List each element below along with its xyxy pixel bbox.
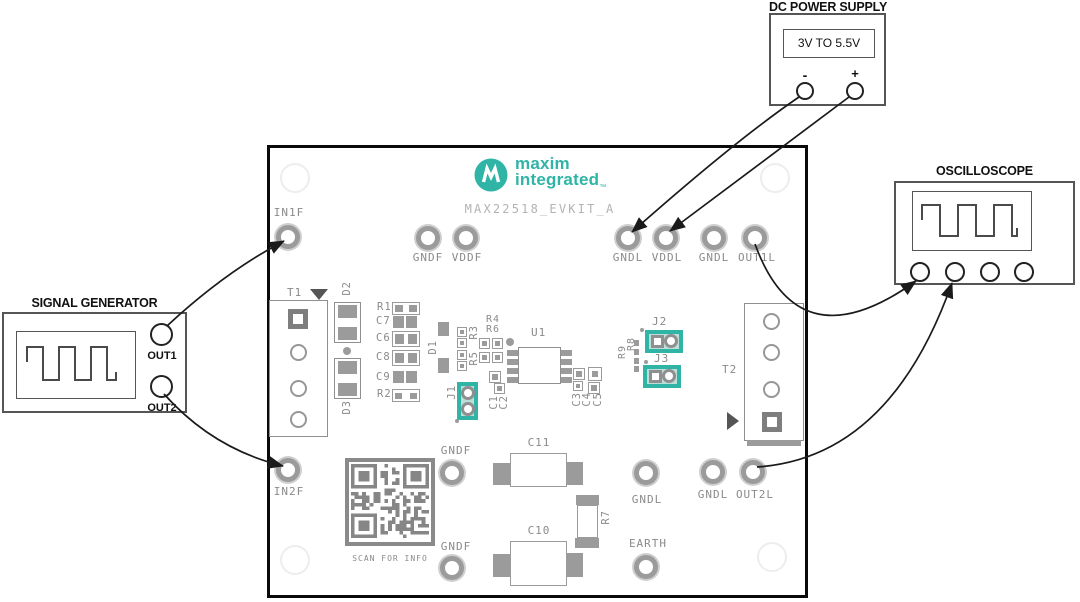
u1-pin — [507, 350, 518, 356]
out1-label: OUT1 — [147, 350, 176, 362]
r6-chip — [479, 352, 490, 363]
ref-c2: C2 — [498, 395, 510, 410]
ref-c5: C5 — [592, 392, 604, 407]
t1-hole — [290, 411, 307, 428]
pin1-dot — [455, 419, 459, 423]
u1-pin — [561, 377, 572, 383]
u1-pin — [561, 359, 572, 365]
c11-cap-end — [566, 462, 583, 485]
j1-pad-round — [461, 402, 475, 416]
signal-generator-out2-terminal — [150, 375, 173, 398]
u1-pin — [561, 368, 572, 374]
pin1-dot — [644, 360, 648, 364]
tp-vddf — [454, 226, 478, 250]
r6-chip — [492, 352, 503, 363]
mounting-hole — [757, 542, 787, 572]
c3-chip — [573, 368, 585, 380]
ref-j2: J2 — [652, 315, 667, 328]
oscilloscope-box — [894, 181, 1075, 285]
j1-pad-round — [461, 386, 475, 400]
r5-chip — [457, 350, 467, 360]
triangle-right-icon — [727, 412, 739, 430]
t1-hole — [290, 344, 307, 361]
ref-u1: U1 — [531, 326, 546, 339]
tp-label-gndl-b: GNDL — [699, 251, 730, 264]
d2-pad — [338, 327, 357, 340]
c11-capacitor — [510, 453, 567, 487]
tp-out1l — [743, 226, 767, 250]
tp-label-out2l: OUT2L — [736, 488, 774, 501]
ref-c9: C9 — [376, 371, 391, 383]
tp-label-earth: EARTH — [629, 537, 667, 550]
minus-label: - — [803, 67, 808, 83]
oscilloscope-title: OSCILLOSCOPE — [894, 164, 1075, 178]
tp-in2f — [276, 458, 300, 482]
qr-code — [345, 458, 435, 546]
maxim-logo-icon — [474, 158, 508, 192]
plus-label: + — [851, 66, 859, 81]
brand-tm: ™ — [599, 184, 606, 191]
d2-pad — [338, 305, 357, 318]
c11-cap-end — [493, 463, 511, 485]
pin1-dot — [640, 328, 644, 332]
oscilloscope-screen — [912, 191, 1032, 251]
voltage-range: 3V TO 5.5V — [783, 29, 875, 58]
tp-gndf-low — [440, 556, 464, 580]
psu-minus-terminal — [796, 82, 814, 100]
ref-d2: D2 — [341, 281, 353, 296]
via-dot — [343, 347, 351, 355]
ref-c10: C10 — [528, 524, 551, 537]
tp-label-gndf-low: GNDF — [441, 540, 472, 553]
c10-capacitor — [510, 541, 567, 586]
dc-power-supply-title: DC POWER SUPPLY — [769, 0, 886, 14]
d1-pad — [438, 358, 449, 373]
c9-chip — [393, 371, 417, 383]
ref-c7: C7 — [376, 315, 391, 327]
qr-caption: SCAN FOR INFO — [345, 554, 435, 563]
r4-chip — [479, 338, 490, 349]
ref-d3: D3 — [341, 400, 353, 415]
c10-cap-end — [493, 554, 511, 577]
mounting-hole — [760, 163, 790, 193]
r9-pad — [634, 349, 639, 355]
r4-chip — [492, 338, 503, 349]
c2-chip — [494, 383, 505, 394]
j2-pad-round — [664, 334, 678, 348]
tp-gndf-mid — [440, 461, 464, 485]
tp-label-gndf-mid: GNDF — [441, 444, 472, 457]
tp-label-gndl-c: GNDL — [632, 493, 663, 506]
mounting-hole — [280, 545, 310, 575]
signal-generator-out1-terminal — [150, 323, 173, 346]
r3-chip — [457, 338, 467, 348]
ref-r7: R7 — [600, 510, 612, 525]
ref-r6: R6 — [486, 324, 500, 335]
t2-hole — [763, 313, 780, 330]
scope-ch1-terminal — [910, 262, 930, 282]
tp-label-vddf: VDDF — [452, 251, 483, 264]
t2-tab — [747, 440, 801, 446]
c10-cap-end — [566, 553, 583, 577]
signal-generator-screen — [16, 331, 136, 399]
r2-chip — [392, 389, 420, 402]
d3-pad — [338, 361, 357, 374]
brand-text: maxim integrated™ — [515, 156, 606, 195]
r7-cap-end — [575, 538, 599, 548]
ref-c6: C6 — [376, 332, 391, 344]
ref-j3: J3 — [654, 352, 669, 365]
square-wave-icon — [913, 192, 1030, 249]
signal-generator-title: SIGNAL GENERATOR — [2, 296, 187, 310]
tp-label-out1l: OUT1L — [738, 251, 776, 264]
triangle-down-icon — [310, 289, 328, 300]
test-setup-diagram: SIGNAL GENERATOR OUT1 OUT2 DC POWER SUPP… — [0, 0, 1080, 602]
c8-chip — [392, 350, 420, 366]
tp-label-gndl-d: GNDL — [698, 488, 729, 501]
out2-label: OUT2 — [147, 402, 176, 414]
r8-pad — [634, 358, 639, 364]
scope-ch3-terminal — [980, 262, 1000, 282]
j3-pad-square — [649, 370, 662, 383]
scope-ch2-terminal — [945, 262, 965, 282]
psu-plus-terminal — [846, 82, 864, 100]
via-dot — [506, 338, 514, 346]
ref-c8: C8 — [376, 351, 391, 363]
u1-pin — [507, 377, 518, 383]
r7-resistor — [577, 505, 598, 538]
c6-chip — [392, 331, 420, 347]
u1-pin — [561, 350, 572, 356]
tp-gndl-b — [702, 226, 726, 250]
r7-cap-end — [576, 495, 599, 505]
j3-jumper — [643, 365, 681, 388]
r1-chip — [392, 302, 420, 315]
r9-pad — [634, 340, 639, 346]
r5-chip — [457, 361, 467, 371]
dc-power-supply-box: 3V TO 5.5V - + — [769, 13, 886, 106]
square-wave-icon — [17, 332, 134, 397]
t2-hole — [763, 381, 780, 398]
ref-t2: T2 — [722, 363, 737, 376]
tp-gndl-c — [634, 461, 658, 485]
tp-earth — [634, 555, 658, 579]
tp-label-gndf-top: GNDF — [413, 251, 444, 264]
c7-chip — [393, 316, 417, 328]
j1-jumper — [457, 382, 478, 420]
t1-hole — [290, 380, 307, 397]
u1-pin — [507, 368, 518, 374]
board-name: MAX22518_EVKIT_A — [465, 202, 616, 216]
tp-vddl — [654, 226, 678, 250]
tp-out2l — [741, 460, 765, 484]
ref-d1: D1 — [427, 340, 439, 355]
scope-ch4-terminal — [1014, 262, 1034, 282]
tp-gndl-a — [616, 226, 640, 250]
u1-pin — [507, 359, 518, 365]
ref-r1: R1 — [377, 301, 392, 313]
d1-pad — [438, 322, 449, 336]
ref-c11: C11 — [528, 436, 551, 449]
signal-generator-box: OUT1 OUT2 — [2, 312, 187, 413]
c5-chip — [573, 381, 583, 391]
r3-chip — [457, 327, 467, 337]
brand-line2: integrated — [515, 170, 599, 189]
u1-ic — [518, 347, 561, 384]
t2-hole — [763, 344, 780, 361]
c1-chip — [489, 371, 501, 383]
tp-gndl-d — [701, 460, 725, 484]
t1-pin1-square — [288, 309, 308, 329]
t2-pin1-square — [762, 412, 782, 432]
r8-pad — [634, 366, 639, 372]
tp-label-in1f: IN1F — [274, 206, 305, 219]
tp-gndf-top — [416, 226, 440, 250]
tp-label-gndl-a: GNDL — [613, 251, 644, 264]
ref-t1: T1 — [287, 286, 302, 299]
d3-pad — [338, 383, 357, 396]
c4-chip — [588, 367, 602, 381]
j3-pad-round — [662, 369, 676, 383]
tp-label-in2f: IN2F — [274, 485, 305, 498]
ref-r2: R2 — [377, 388, 392, 400]
mounting-hole — [280, 163, 310, 193]
j2-jumper — [645, 330, 683, 353]
j2-pad-square — [651, 335, 664, 348]
tp-in1f — [276, 225, 300, 249]
tp-label-vddl: VDDL — [652, 251, 683, 264]
